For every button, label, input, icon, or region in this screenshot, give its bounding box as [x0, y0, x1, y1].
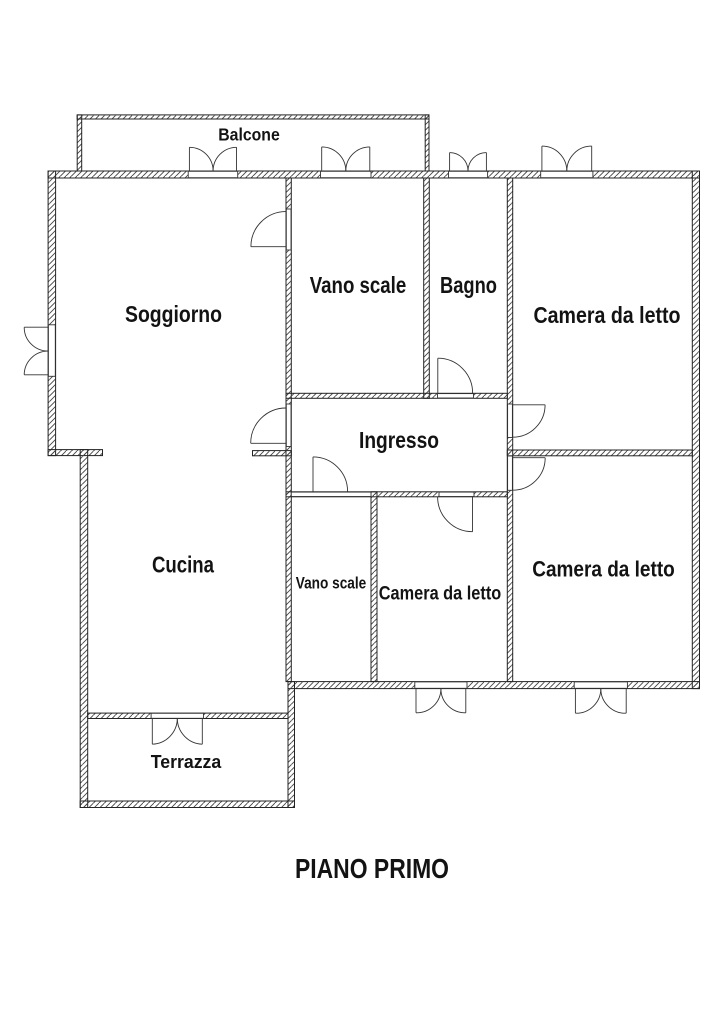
- svg-text:PIANO PRIMO: PIANO PRIMO: [295, 853, 449, 884]
- svg-text:Cucina: Cucina: [152, 552, 214, 578]
- svg-text:Vano scale: Vano scale: [310, 272, 407, 298]
- svg-text:Camera da letto: Camera da letto: [379, 583, 502, 605]
- svg-text:Vano scale: Vano scale: [296, 575, 367, 593]
- svg-text:Bagno: Bagno: [440, 272, 497, 298]
- svg-text:Balcone: Balcone: [218, 125, 280, 145]
- svg-text:Camera da letto: Camera da letto: [534, 302, 681, 328]
- svg-text:Soggiorno: Soggiorno: [125, 301, 222, 327]
- svg-text:Camera da letto: Camera da letto: [532, 557, 675, 582]
- svg-text:Terrazza: Terrazza: [151, 751, 222, 772]
- svg-text:Ingresso: Ingresso: [359, 427, 439, 453]
